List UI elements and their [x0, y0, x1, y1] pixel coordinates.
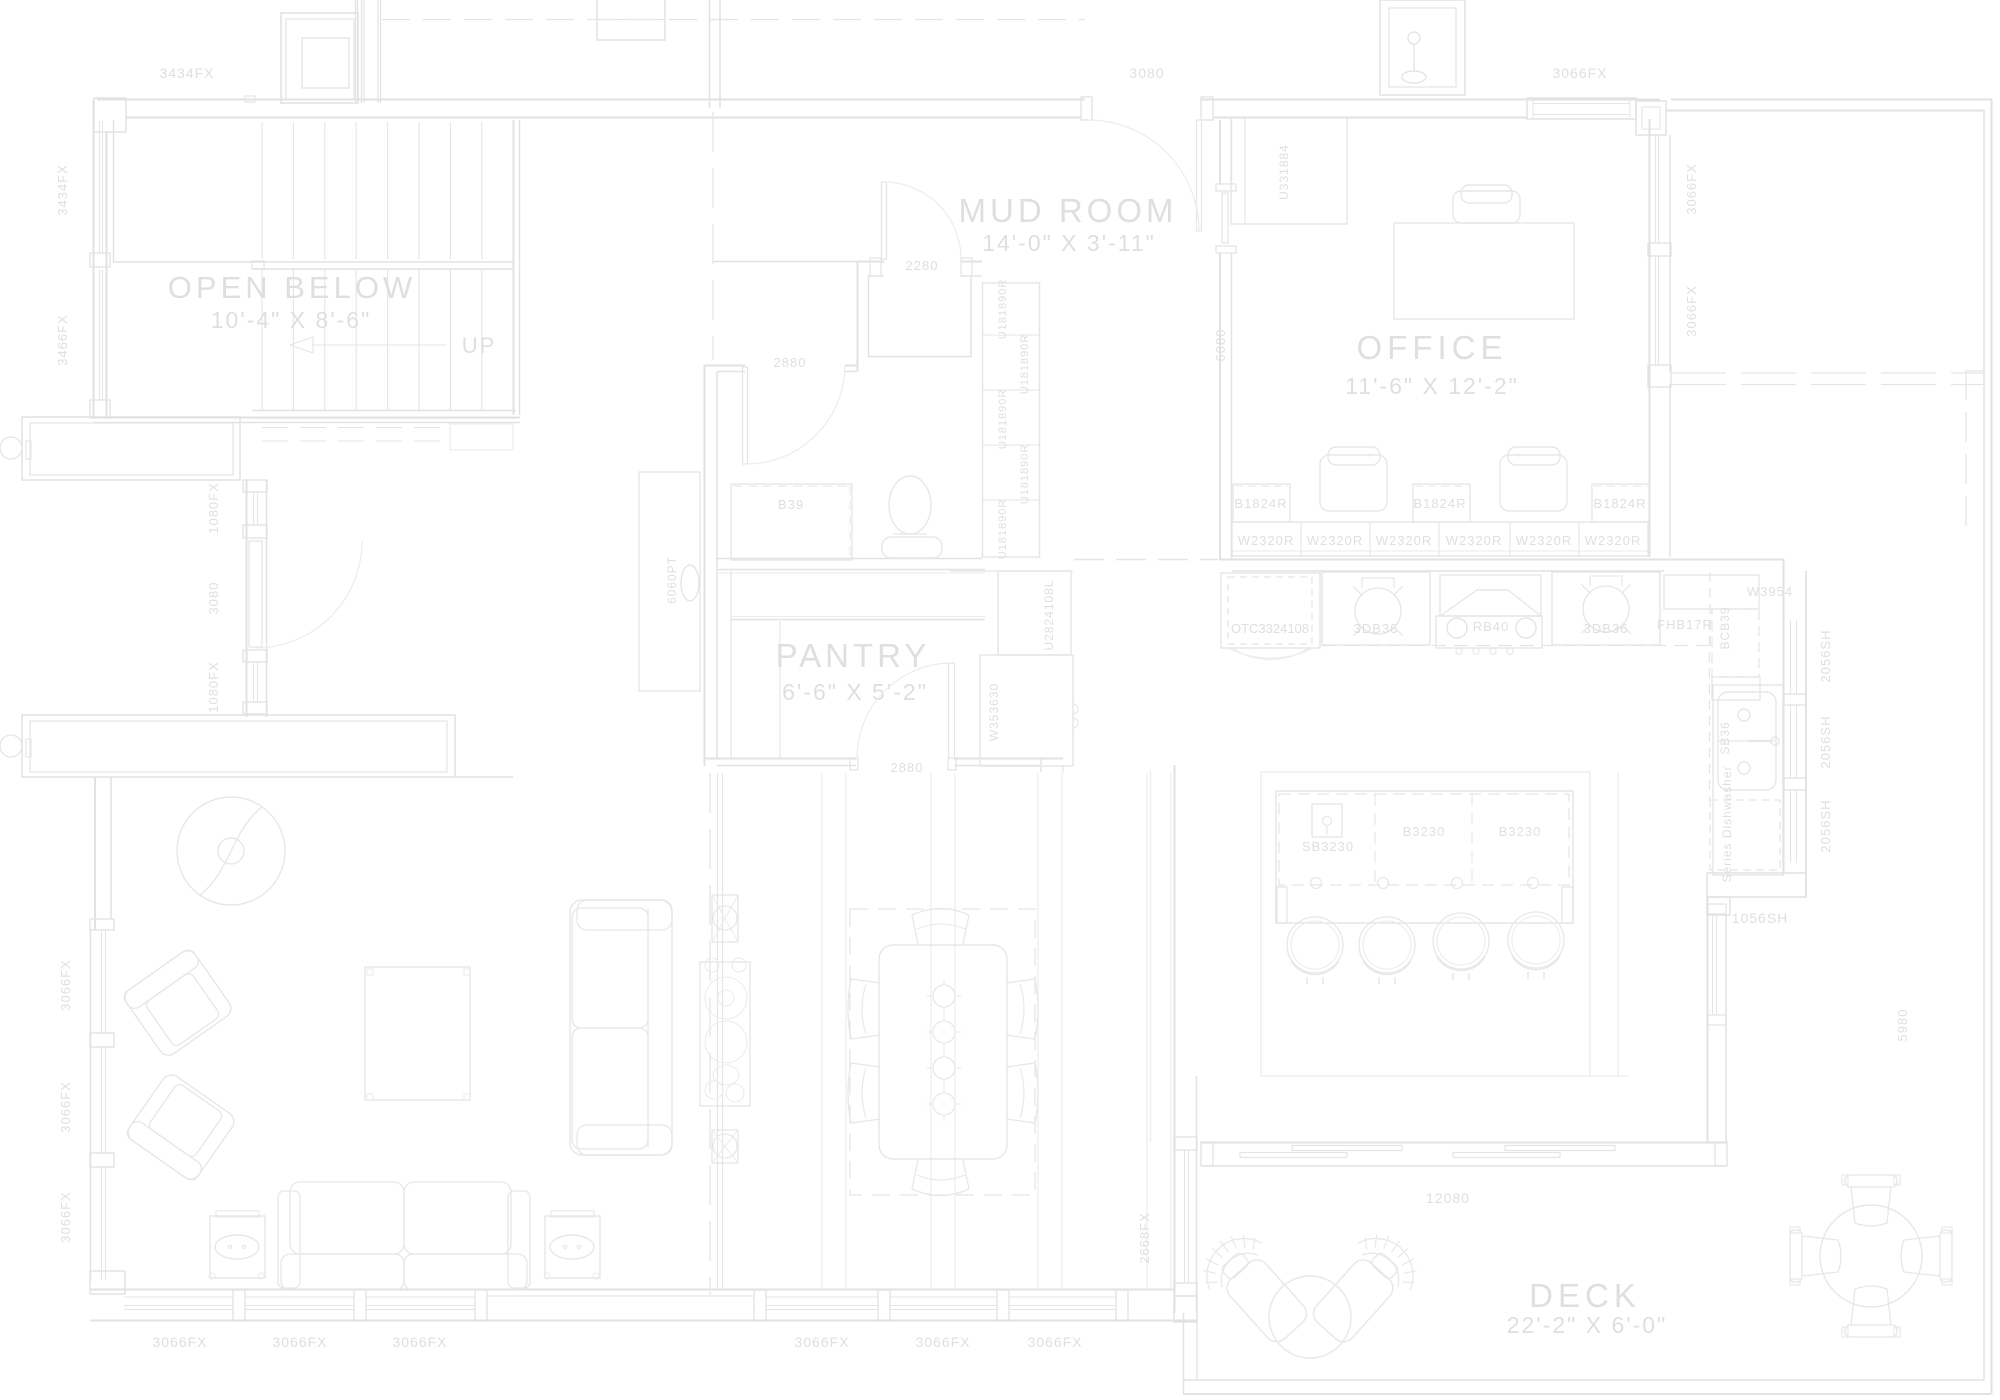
svg-text:11'-6" X 12'-2": 11'-6" X 12'-2": [1345, 373, 1519, 399]
svg-text:12080: 12080: [1426, 1190, 1470, 1206]
svg-text:RB40: RB40: [1473, 619, 1510, 634]
svg-text:2056SH: 2056SH: [1818, 716, 1833, 769]
svg-text:6080: 6080: [1213, 329, 1228, 362]
svg-text:3066FX: 3066FX: [794, 1334, 849, 1350]
svg-text:SB3230: SB3230: [1302, 839, 1354, 854]
svg-text:DECK: DECK: [1529, 1277, 1641, 1314]
svg-text:3434FX: 3434FX: [159, 65, 214, 81]
svg-text:3066FX: 3066FX: [152, 1334, 207, 1350]
svg-text:W2320R: W2320R: [1585, 533, 1642, 548]
svg-text:14'-0" X 3'-11": 14'-0" X 3'-11": [982, 230, 1156, 256]
svg-text:W2320R: W2320R: [1376, 533, 1433, 548]
svg-text:3434FX: 3434FX: [55, 164, 70, 216]
svg-text:2880: 2880: [891, 760, 924, 775]
svg-text:2668FX: 2668FX: [1137, 1212, 1152, 1264]
svg-text:B39: B39: [778, 497, 804, 512]
svg-text:OFFICE: OFFICE: [1357, 329, 1508, 366]
svg-text:2280: 2280: [906, 258, 939, 273]
svg-text:3080: 3080: [1129, 65, 1164, 81]
svg-text:U181890R: U181890R: [1019, 444, 1031, 505]
svg-text:3466FX: 3466FX: [55, 314, 70, 366]
svg-text:3066FX: 3066FX: [1684, 163, 1699, 215]
svg-text:3066FX: 3066FX: [1027, 1334, 1082, 1350]
svg-text:3DB36: 3DB36: [1584, 621, 1629, 636]
svg-text:W2320R: W2320R: [1238, 533, 1295, 548]
svg-text:3066FX: 3066FX: [272, 1334, 327, 1350]
svg-text:3066FX: 3066FX: [58, 1191, 73, 1243]
svg-text:3066FX: 3066FX: [1684, 285, 1699, 337]
svg-text:3066FX: 3066FX: [1552, 65, 1607, 81]
svg-text:PANTRY: PANTRY: [776, 637, 931, 674]
svg-text:3066FX: 3066FX: [58, 959, 73, 1011]
svg-text:5980: 5980: [1895, 1009, 1910, 1042]
svg-text:OTC3324108: OTC3324108: [1231, 621, 1309, 636]
svg-text:3080: 3080: [206, 582, 221, 615]
svg-text:W2320R: W2320R: [1446, 533, 1503, 548]
svg-text:3066FX: 3066FX: [58, 1081, 73, 1133]
svg-text:B3230: B3230: [1499, 824, 1542, 839]
svg-text:1080FX: 1080FX: [206, 661, 221, 713]
svg-text:MUD ROOM: MUD ROOM: [959, 192, 1178, 229]
svg-text:10'-4" X 8'-6": 10'-4" X 8'-6": [211, 307, 372, 333]
svg-text:Series Dishwasher: Series Dishwasher: [1720, 765, 1734, 882]
svg-text:B1824R: B1824R: [1235, 496, 1288, 511]
svg-text:W2320R: W2320R: [1307, 533, 1364, 548]
svg-text:B1824R: B1824R: [1414, 496, 1467, 511]
svg-text:UP: UP: [462, 333, 497, 358]
svg-text:1080FX: 1080FX: [206, 482, 221, 534]
svg-text:U181890R: U181890R: [997, 499, 1009, 560]
svg-text:2056SH: 2056SH: [1818, 800, 1833, 853]
svg-text:2056SH: 2056SH: [1818, 630, 1833, 683]
svg-text:2880: 2880: [774, 355, 807, 370]
svg-text:U2824108L: U2824108L: [1042, 579, 1056, 650]
svg-text:3066FX: 3066FX: [915, 1334, 970, 1350]
svg-text:FHB17R: FHB17R: [1657, 617, 1713, 632]
svg-text:B3230: B3230: [1403, 824, 1446, 839]
svg-text:U181890R: U181890R: [997, 279, 1009, 340]
svg-text:3066FX: 3066FX: [392, 1334, 447, 1350]
svg-text:U181890R: U181890R: [1019, 334, 1031, 395]
svg-text:SB36: SB36: [1718, 721, 1732, 754]
svg-text:1056SH: 1056SH: [1732, 910, 1789, 926]
svg-text:3DB36: 3DB36: [1354, 621, 1399, 636]
svg-text:22'-2" X 6'-0": 22'-2" X 6'-0": [1507, 1312, 1668, 1338]
svg-text:BCB39: BCB39: [1718, 606, 1732, 649]
svg-text:W3954: W3954: [1747, 584, 1793, 599]
svg-text:U331884: U331884: [1277, 144, 1291, 200]
svg-text:OPEN BELOW: OPEN BELOW: [168, 270, 416, 305]
svg-text:6060PT: 6060PT: [665, 556, 679, 604]
svg-text:W2320R: W2320R: [1516, 533, 1573, 548]
svg-text:B1824R: B1824R: [1594, 496, 1647, 511]
svg-text:6'-6" X 5'-2": 6'-6" X 5'-2": [782, 679, 928, 705]
svg-text:U181890R: U181890R: [997, 389, 1009, 450]
svg-text:W353630: W353630: [987, 683, 1001, 741]
